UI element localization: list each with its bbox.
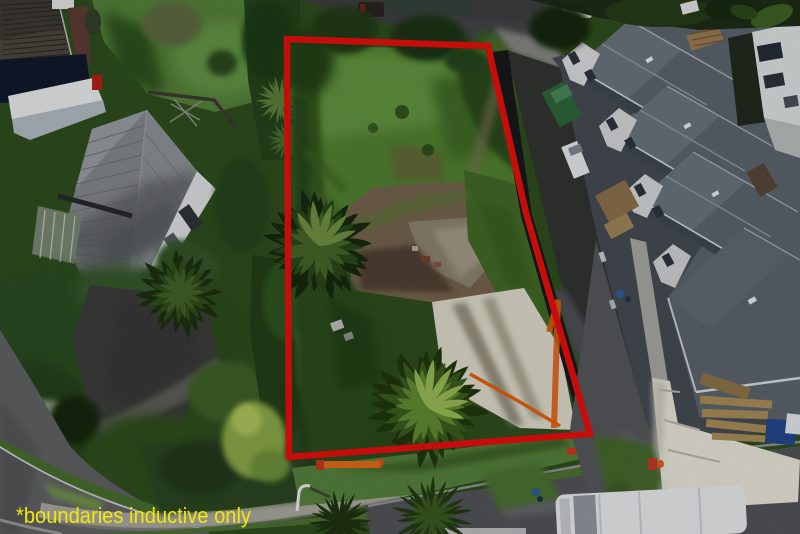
svg-text:*boundaries inductive only: *boundaries inductive only [16, 503, 251, 528]
